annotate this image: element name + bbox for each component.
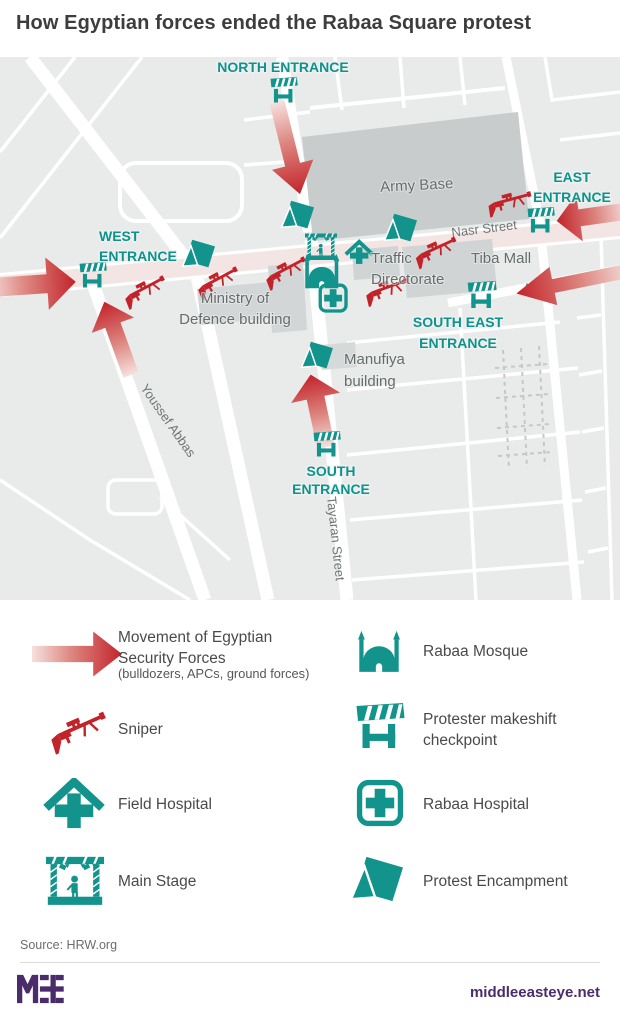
traffic-directorate-label: Directorate xyxy=(371,271,444,288)
rabaa-hospital-icon xyxy=(356,779,404,827)
tiba-mall-label: Tiba Mall xyxy=(471,250,531,267)
mosque-icon xyxy=(353,626,405,672)
legend-label-rabaa-hospital: Rabaa Hospital xyxy=(423,794,529,815)
tent-icon xyxy=(350,854,406,904)
traffic-directorate-label: Traffic xyxy=(371,250,412,267)
main-stage-icon xyxy=(46,852,104,907)
legend-sublabel-movement: (bulldozers, APCs, ground forces) xyxy=(118,666,348,681)
legend-label-sniper: Sniper xyxy=(118,719,163,740)
field-hospital-icon xyxy=(42,778,106,830)
movement-arrow-icon xyxy=(32,631,122,677)
ministry-of-defence-label: Ministry of xyxy=(201,290,270,307)
north-entrance-label: NORTH ENTRANCE xyxy=(217,59,348,75)
west-entrance-label: ENTRANCE xyxy=(99,248,177,264)
checkpoint-icon xyxy=(352,703,406,751)
east-entrance-label: EAST xyxy=(553,169,591,185)
rabaa-square-map: Nasr Street Anwar Al-Mufti Youssef Abbas… xyxy=(0,57,620,600)
mee-logo xyxy=(17,974,69,1004)
south-entrance-label: SOUTH xyxy=(307,463,356,479)
sniper-icon xyxy=(38,700,114,758)
west-entrance-label: WEST xyxy=(99,228,140,244)
south-east-entrance-label: SOUTH EAST xyxy=(413,314,504,330)
south-entrance-label: ENTRANCE xyxy=(292,481,370,497)
manufiya-building-label: building xyxy=(344,373,396,390)
legend-label-checkpoint: Protester makeshift checkpoint xyxy=(423,709,608,751)
east-entrance-label: ENTRANCE xyxy=(533,189,611,205)
page-title: How Egyptian forces ended the Rabaa Squa… xyxy=(16,12,531,35)
manufiya-building-label: Manufiya xyxy=(344,351,406,368)
footer-divider xyxy=(20,962,600,963)
legend-label-main-stage: Main Stage xyxy=(118,871,196,892)
main-stage-icon xyxy=(305,233,337,260)
site-url: middleeasteye.net xyxy=(470,984,600,1001)
legend-label-movement: Movement of Egyptian Security Forces xyxy=(118,627,313,669)
legend-label-encampment: Protest Encampment xyxy=(423,871,568,892)
ministry-of-defence-label: Defence building xyxy=(179,311,291,328)
south-east-entrance-label: ENTRANCE xyxy=(419,335,497,351)
legend-label-rabaa-mosque: Rabaa Mosque xyxy=(423,641,528,662)
legend-label-field-hospital: Field Hospital xyxy=(118,794,212,815)
source-credit: Source: HRW.org xyxy=(20,938,117,952)
